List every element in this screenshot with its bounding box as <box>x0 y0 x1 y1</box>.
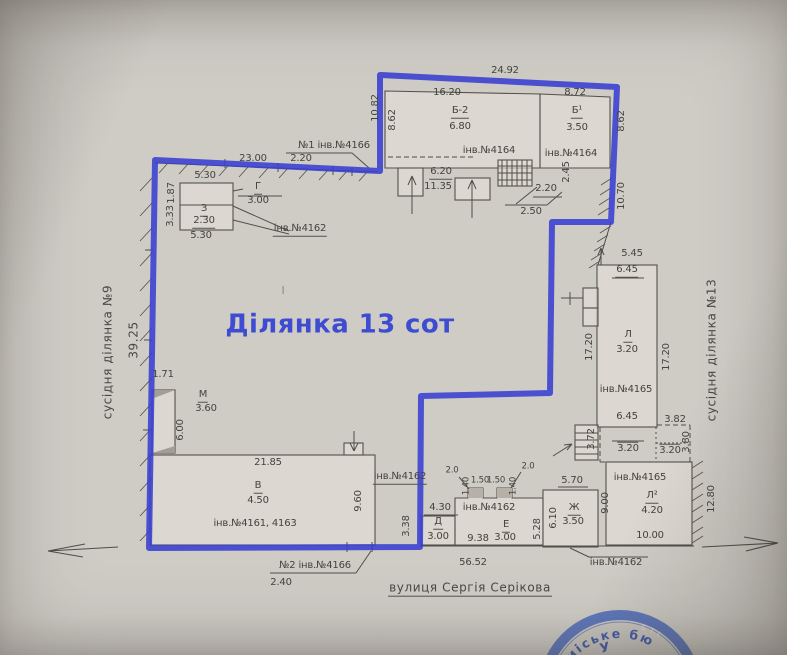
label-l2-inv: інв.№4165 <box>614 473 666 484</box>
label-b1-right: 8.62 <box>617 110 628 131</box>
label-d620: 6.20 <box>429 167 452 180</box>
label-gate2-width: 2.40 <box>270 578 291 589</box>
label-d220b: 2.20 <box>535 184 556 195</box>
label-l-inv: інв.№4165 <box>600 385 652 396</box>
label-e150b: 1.50 <box>487 477 505 486</box>
label-v-val: 4.50 <box>247 496 268 507</box>
label-len-top-left: 23.00 <box>239 154 267 165</box>
label-gz-h2: 3.33 <box>166 205 177 226</box>
label-l-1720l: 17.20 <box>585 333 596 361</box>
label-d610: 6.10 <box>549 507 560 528</box>
label-m-h: 6.00 <box>176 419 187 440</box>
label-d-name: Д <box>433 517 443 530</box>
label-name: вулиця Сергія Серікова <box>388 582 552 597</box>
label-title-label: Ділянка 13 сот <box>225 311 454 338</box>
label-b2-left-in: 8.62 <box>388 109 399 130</box>
label-l-645: 6.45 <box>615 265 638 278</box>
label-lb-320b: 3.20 <box>659 444 680 457</box>
label-l-val: 3.20 <box>616 345 637 356</box>
label-v-inv: інв.№4161, 4163 <box>213 519 296 530</box>
label-v-len: 21.85 <box>254 458 282 469</box>
label-zh-val: 3.50 <box>562 517 583 528</box>
label-e140r: 1.40 <box>510 477 519 495</box>
label-lb-372: 3.72 <box>587 428 598 449</box>
label-b1-inv: інв.№4164 <box>545 149 597 160</box>
label-gz-h1: 1.87 <box>167 182 178 203</box>
label-lb-320a: 3.20 <box>617 442 638 455</box>
label-l2-name: Л² <box>645 491 658 504</box>
label-z-val: 2.30 <box>192 216 215 229</box>
label-g-val: 3.00 <box>247 196 268 207</box>
label-gate2: №2 інв.№4166 <box>279 561 351 572</box>
label-lb-382: 3.82 <box>664 415 685 426</box>
label-d570: 5.70 <box>561 476 582 487</box>
label-d245: 2.45 <box>562 161 573 182</box>
label-l2-val: 4.20 <box>641 506 662 517</box>
label-d528: 5.28 <box>533 518 544 539</box>
label-e20l: 2.0 <box>446 467 459 476</box>
label-g-name: Г <box>254 182 262 195</box>
label-gz-bottom: 5.30 <box>190 231 211 242</box>
label-v-h: 9.60 <box>354 490 365 511</box>
label-lb-645: 6.45 <box>616 412 637 423</box>
label-left: сусідня ділянка №9 <box>102 285 115 420</box>
label-d250: 2.50 <box>520 207 541 218</box>
label-b1-name: Б¹ <box>571 106 583 119</box>
label-l-1720r: 17.20 <box>662 343 673 371</box>
label-b2-left-out: 10.82 <box>371 94 382 122</box>
label-gate1: №1 інв.№4166 <box>298 141 370 152</box>
label-e938: 9.38 <box>467 534 488 545</box>
label-d430: 4.30 <box>429 503 450 514</box>
label-l-name: Л <box>623 330 632 343</box>
label-v-inv2: інв.№4162 <box>373 472 427 485</box>
scanned-plot-plan: міжміське бю бті БТІ У 23.00№1 інв.№4166… <box>0 0 787 655</box>
label-b1-w: 8.72 <box>564 88 585 99</box>
label-e-val: 3.00 <box>494 533 515 544</box>
label-d1135: 11.35 <box>424 182 452 193</box>
label-d900: 9.00 <box>601 492 612 513</box>
label-b2-name: Б-2 <box>451 106 469 119</box>
label-l2-len: 10.00 <box>636 531 664 542</box>
label-b2-val: 6.80 <box>449 122 470 133</box>
label-m-name: М <box>198 390 208 403</box>
label-d1070: 10.70 <box>617 182 628 210</box>
label-lb-380: 3.80 <box>682 431 693 452</box>
label-b2-inv: інв.№4164 <box>463 146 515 157</box>
label-frontage: 56.52 <box>459 558 487 569</box>
label-e-inv: інв.№4162 <box>463 503 515 514</box>
label-b2-w: 16.20 <box>433 88 461 99</box>
label-v-name: В <box>254 481 263 494</box>
label-d-val: 3.00 <box>427 532 448 543</box>
label-gz-top: 5.30 <box>194 171 215 182</box>
label-e20r: 2.0 <box>522 463 535 472</box>
label-tick-i: І <box>281 285 284 297</box>
label-b1-val: 3.50 <box>566 123 587 134</box>
label-m-val: 3.60 <box>195 404 216 415</box>
label-m-w: 1.71 <box>152 370 173 381</box>
label-d338: 3.38 <box>402 515 413 536</box>
label-e-name: Е <box>502 520 510 533</box>
label-len-top: 24.92 <box>491 66 519 77</box>
plan-labels: 23.00№1 інв.№41662.2024.9216.208.72Б-26.… <box>0 0 787 655</box>
label-len-left: 39.25 <box>128 321 141 358</box>
label-l2-inv2: інв.№4162 <box>590 558 642 569</box>
label-gate1-width: 2.20 <box>290 154 311 165</box>
label-gz-inv: інв.№4162 <box>273 224 327 237</box>
label-l-545: 5.45 <box>621 249 642 260</box>
label-d1280: 12.80 <box>707 485 718 513</box>
label-right: сусідня ділянка №13 <box>706 279 719 422</box>
label-zh-name: Ж <box>568 503 581 516</box>
